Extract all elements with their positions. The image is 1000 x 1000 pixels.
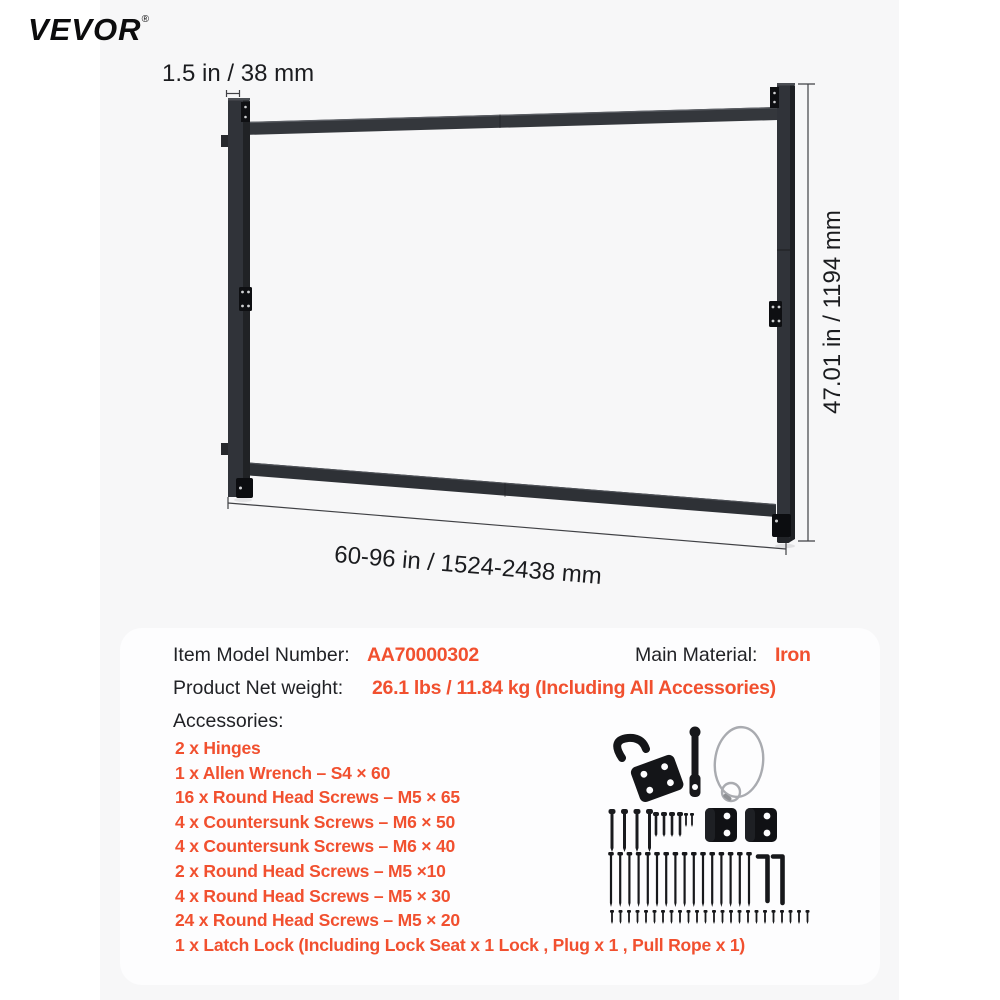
right-post (769, 83, 795, 543)
spec-panel: Item Model Number: AA70000302 Main Mater… (120, 628, 880, 985)
plug-illustration (690, 727, 701, 798)
hinge-plate (239, 287, 252, 311)
small-screws-illustration (610, 910, 810, 924)
left-post (221, 98, 253, 498)
accessories-label: Accessories: (173, 710, 284, 733)
height-dimension-label: 47.01 in / 1194 mm (819, 210, 847, 414)
right-post-shadow (775, 544, 795, 548)
model-value: AA70000302 (367, 644, 479, 667)
product-spec-image: VEVOR® (0, 0, 1000, 1000)
top-rail (243, 107, 778, 135)
left-foot-bracket (236, 478, 253, 498)
bottom-rail (243, 462, 776, 517)
mount-tab (221, 135, 228, 147)
screws-m6-illustration (609, 809, 695, 852)
material-value: Iron (775, 644, 811, 667)
mount-tab (221, 443, 228, 455)
latch-lock-illustration (617, 738, 685, 804)
weight-value: 26.1 lbs / 11.84 kg (Including All Acces… (372, 677, 776, 700)
pull-rope-illustration (711, 724, 767, 801)
accessories-kit-illustration (590, 700, 880, 990)
material-label: Main Material: (635, 644, 757, 667)
latch-plate (769, 301, 782, 327)
left-post-shadow (234, 498, 252, 502)
right-foot-bracket (772, 514, 791, 537)
allen-wrench-illustration (758, 857, 783, 904)
weight-label: Product Net weight: (173, 677, 343, 700)
width-dimension-label: 1.5 in / 38 mm (162, 60, 314, 88)
long-screws-illustration (608, 852, 752, 907)
hinges-illustration (705, 808, 777, 842)
model-label: Item Model Number: (173, 644, 350, 667)
